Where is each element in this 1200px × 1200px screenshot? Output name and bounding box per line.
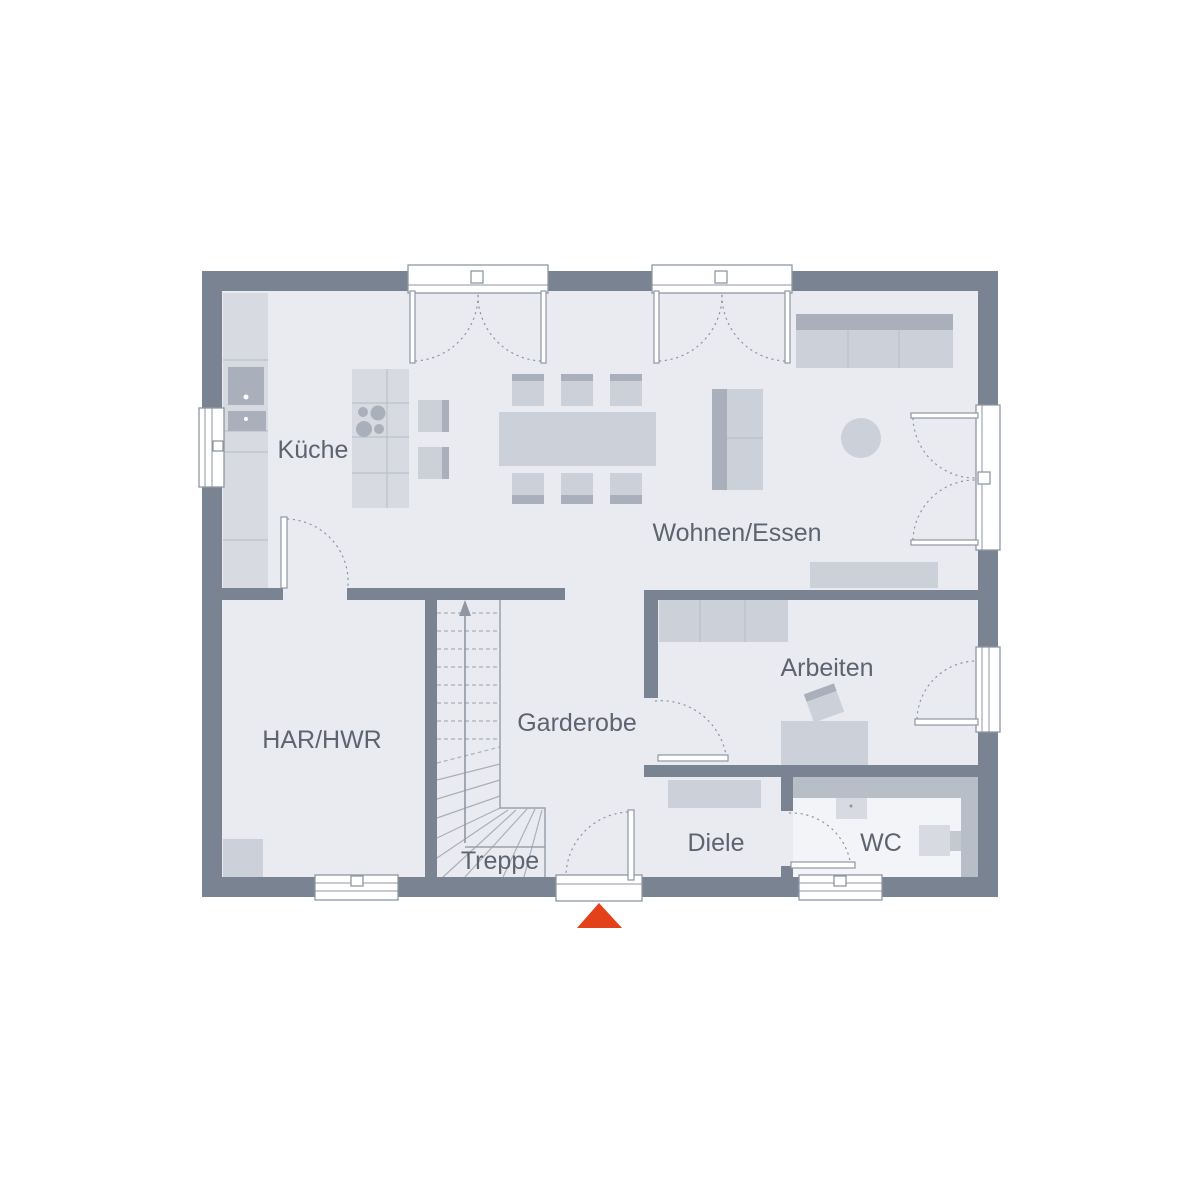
- wc-sink-drain: [850, 805, 853, 808]
- window-leaf: [915, 719, 978, 725]
- inner-wall-office-top: [644, 590, 978, 600]
- island-body: [352, 369, 409, 508]
- door-handle: [978, 472, 990, 484]
- door-leaf: [410, 291, 415, 363]
- utility-appliance: [223, 839, 263, 877]
- sideboard: [810, 562, 938, 588]
- dining-chair: [610, 381, 642, 406]
- dining-chair: [512, 473, 544, 497]
- built-in-appliance: [228, 411, 266, 431]
- window-handle: [213, 441, 223, 451]
- room-label-wohnen-essen: Wohnen/Essen: [652, 519, 821, 547]
- wc-toilet: [919, 825, 950, 856]
- inner-wall-office-stub: [644, 600, 658, 698]
- hob-burner: [371, 406, 386, 421]
- dining-chair: [610, 473, 642, 497]
- office-shelf: [659, 599, 788, 642]
- door-leaf: [911, 413, 978, 418]
- dining-chair-back: [561, 495, 593, 504]
- room-label-wc: WC: [860, 829, 902, 857]
- room-label-treppe: Treppe: [461, 847, 539, 875]
- dining-chair-back: [512, 495, 544, 504]
- door-leaf: [658, 755, 728, 761]
- sofa-back: [796, 314, 953, 330]
- door-leaf: [791, 862, 855, 868]
- desk: [781, 721, 868, 766]
- door-leaf: [281, 517, 287, 588]
- dining-chair: [561, 473, 593, 497]
- hob-burner: [358, 407, 368, 417]
- inner-wall-stairs: [425, 600, 437, 877]
- wc-window: [799, 875, 882, 900]
- room-label-kueche: Küche: [278, 436, 349, 464]
- oven-knob: [244, 395, 249, 400]
- hob-burner: [374, 424, 384, 434]
- room-label-arbeiten: Arbeiten: [780, 654, 873, 682]
- window-handle: [834, 876, 846, 886]
- outer-wall-left: [202, 271, 222, 897]
- inner-wall-office-bottom: [644, 765, 978, 777]
- window-frame: [976, 647, 1000, 732]
- room-label-diele: Diele: [688, 829, 745, 857]
- dining-chair: [512, 381, 544, 406]
- dining-chair: [561, 381, 593, 406]
- door-handle: [471, 271, 483, 283]
- room-label-garderobe: Garderobe: [517, 709, 637, 737]
- inner-wall-kitchen-east: [347, 588, 565, 600]
- kitchen-counter-run: [223, 293, 268, 590]
- bar-stool: [418, 400, 442, 432]
- hob-burner: [356, 421, 372, 437]
- bar-stool-back: [442, 400, 449, 432]
- shelf-unit: [727, 389, 763, 490]
- kitchen-island: [352, 369, 409, 508]
- hall-sideboard: [668, 780, 761, 808]
- appliance-knob: [244, 417, 248, 421]
- door-handle: [715, 271, 727, 283]
- coffee-table: [841, 418, 881, 458]
- bar-stool: [418, 447, 442, 479]
- kitchen-counter: [223, 293, 268, 590]
- dining-set: [499, 374, 656, 504]
- dining-table: [499, 412, 656, 466]
- outer-wall-top: [202, 271, 998, 291]
- entrance-triangle-icon: [577, 903, 622, 928]
- utility-window: [315, 875, 398, 900]
- floorplan-page: Küche Wohnen/Essen Arbeiten Garderobe HA…: [0, 0, 1200, 1200]
- shelf-unit-back: [712, 389, 727, 490]
- wc-sink: [836, 798, 867, 819]
- room-label-har-hwr: HAR/HWR: [262, 726, 381, 754]
- wc-toilet-tank: [950, 831, 961, 851]
- door-leaf: [541, 291, 546, 363]
- dining-chair-back: [610, 495, 642, 504]
- door-leaf: [785, 291, 790, 363]
- inner-wall-wc-stub-top: [781, 777, 793, 811]
- door-leaf: [911, 540, 978, 545]
- door-leaf: [654, 291, 659, 363]
- bar-stool-back: [442, 447, 449, 479]
- kitchen-window: [199, 408, 224, 487]
- inner-wall-kitchen-west: [222, 588, 283, 600]
- sofa: [796, 330, 953, 368]
- door-leaf: [628, 810, 634, 880]
- outer-wall-right: [978, 271, 998, 897]
- window-handle: [351, 876, 363, 886]
- floorplan-drawing: Küche Wohnen/Essen Arbeiten Garderobe HA…: [0, 0, 1200, 1200]
